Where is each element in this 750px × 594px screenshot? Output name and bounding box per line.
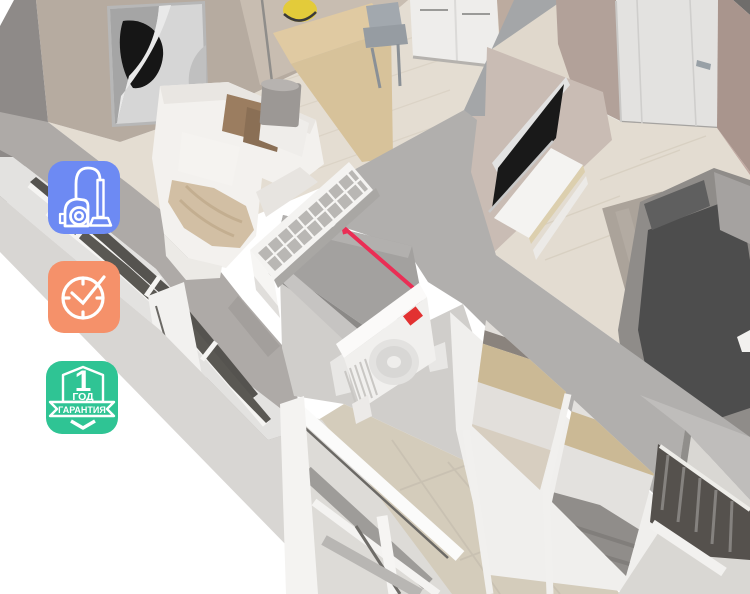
svg-text:ГОД: ГОД <box>72 391 94 403</box>
svg-text:ГАРАНТИЯ: ГАРАНТИЯ <box>58 405 106 415</box>
